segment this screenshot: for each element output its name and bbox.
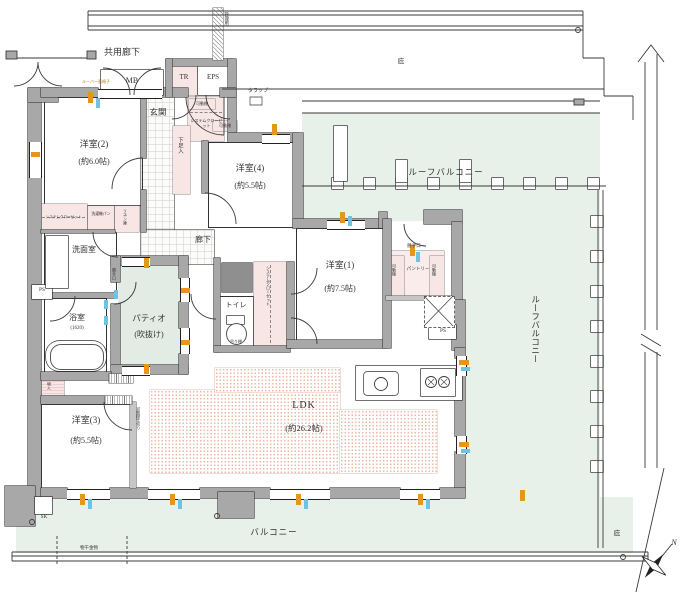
service-door-label: 勝手口: [400, 243, 428, 249]
wall-segment: [220, 88, 236, 97]
movable-shelf-label: 可動棚: [215, 123, 235, 128]
railing-post: [591, 251, 603, 262]
shutter-mark: [418, 494, 423, 505]
western4-size: (約5.5帖): [212, 181, 288, 191]
ldk-floor-pattern: [215, 368, 340, 392]
bathtub-inner: [50, 344, 104, 370]
patio-note: (吹抜け): [123, 330, 175, 340]
western3-name: 洋室(3): [50, 415, 122, 426]
hanging-shelf-label: 吊り棚: [226, 339, 246, 344]
wall-segment: [455, 452, 465, 490]
window: [456, 356, 467, 376]
wall-segment: [179, 256, 188, 278]
shoe-closet-label: 下足入: [176, 137, 183, 154]
shutter-mark: [181, 340, 190, 345]
shutter-mark: [31, 152, 40, 157]
wall-segment: [41, 396, 107, 404]
balcony-corner-block: [5, 486, 35, 526]
wall-segment: [141, 96, 146, 158]
wall-segment: [287, 262, 294, 348]
wall-segment: [330, 488, 400, 498]
window: [262, 134, 290, 144]
mb-label: MB: [118, 76, 146, 86]
wall-segment: [179, 302, 188, 328]
wall-segment: [110, 488, 148, 498]
wall-segment: [293, 133, 303, 228]
screen-mark: [104, 316, 108, 325]
shutter-mark: [88, 92, 93, 103]
screen-mark: [461, 367, 470, 371]
wall-segment: [179, 354, 188, 374]
ps-label: PS: [34, 287, 50, 294]
floor-plan: 共用廊下 庇 管理用 タラップ ルーバー面格子 MB TR EPS 玄関 下足入…: [0, 0, 680, 599]
bathroom-size: (1620): [62, 326, 92, 332]
sk-sink: [35, 497, 52, 514]
linen-closet-label: リネン庫: [123, 209, 128, 225]
movable-shelf-label: 可動棚: [432, 264, 437, 276]
kitchen-stove: [421, 369, 455, 396]
shutter-mark: [144, 364, 149, 374]
compass-icon: [642, 544, 672, 578]
balcony-pillar: [218, 492, 254, 518]
wall-segment: [166, 59, 232, 66]
screen-mark: [96, 98, 100, 108]
shutter-mark: [296, 494, 301, 505]
screen-mark: [426, 499, 430, 509]
laundry-pan-box: [88, 206, 114, 233]
pantry-shelf-left: [391, 256, 404, 300]
railing-post: [364, 178, 375, 189]
patio-name: パティオ: [125, 313, 173, 324]
vanity-counter: [46, 236, 68, 288]
entrance-label: 玄関: [142, 107, 174, 118]
kitchen-sink: [364, 372, 398, 395]
shutter-mark: [80, 494, 85, 505]
screen-mark: [88, 499, 92, 509]
wall-segment: [41, 372, 111, 380]
eaves-label-top: 庇: [394, 58, 408, 66]
ldk-name: LDK: [282, 400, 326, 413]
louver-grille-label: ルーバー面格子: [82, 79, 110, 84]
wall-segment: [141, 190, 146, 232]
closet-shelf-line: [190, 112, 222, 113]
window: [98, 89, 162, 99]
roof-pillar: [334, 126, 347, 181]
ps-duct: [222, 263, 252, 292]
railing-post: [591, 216, 603, 227]
ldk-floor-pattern: [340, 410, 437, 473]
shutter-mark: [144, 258, 149, 268]
service-door-label: 勝手口: [112, 268, 117, 280]
ladder-label: タラップ: [248, 89, 268, 95]
screen-mark: [416, 252, 420, 262]
western2-size: (約6.0帖): [54, 157, 134, 167]
eaves-label-bottom: 庇: [611, 530, 623, 538]
railing-post: [588, 178, 599, 189]
window: [327, 220, 365, 230]
shutter-mark: [459, 360, 469, 365]
corridor-label: 廊下: [188, 235, 218, 245]
movable-shelf-label: 可動棚: [191, 101, 213, 106]
eps-label: EPS: [199, 73, 227, 82]
system-closet-label: システムクローゼット: [266, 266, 271, 306]
railing-post: [556, 178, 567, 189]
toilet-label: トイレ: [221, 301, 251, 310]
wall-segment: [214, 346, 290, 352]
partition-track: [105, 396, 132, 404]
balcony-label: バルコニー: [244, 527, 304, 538]
tr-label: TR: [172, 73, 196, 82]
western1-name: 洋室(1): [304, 260, 376, 271]
pantry-shelf-right: [430, 256, 444, 300]
shutter-mark: [272, 124, 277, 135]
wall-segment: [41, 230, 115, 233]
railing-post: [492, 178, 503, 189]
shutter-mark: [459, 442, 469, 447]
wall-segment: [214, 258, 220, 352]
railing-post: [591, 461, 603, 472]
railing-post: [524, 178, 535, 189]
compass-north-label: N: [668, 538, 680, 548]
roof-balcony-label-right: ルーフバルコニー: [530, 295, 541, 363]
wall-segment: [452, 222, 462, 304]
western3-size: (約5.5帖): [48, 436, 124, 446]
window: [29, 142, 42, 178]
screen-mark: [114, 290, 118, 299]
duct-box: [424, 296, 455, 328]
shutter-mark: [340, 212, 345, 223]
shutter-mark: [181, 288, 190, 293]
shutter-mark: [170, 494, 175, 505]
bathroom-label: 浴室: [60, 313, 94, 323]
wall-segment: [41, 293, 115, 298]
ldk-size: (約26.2帖): [272, 423, 336, 434]
wall-segment: [440, 488, 465, 498]
western2-name: 洋室(2): [56, 139, 132, 150]
maintenance-strip: [213, 8, 223, 60]
laundry-pan-label: 洗濯機パン: [89, 212, 113, 217]
railing-post: [591, 426, 603, 437]
screen-mark: [104, 300, 108, 309]
railing-post: [591, 356, 603, 367]
screen-mark: [461, 449, 470, 453]
wall-segment: [383, 219, 391, 348]
sk-label: SK: [37, 515, 51, 521]
western1-size: (約7.5帖): [302, 284, 378, 294]
room-western2: [44, 97, 143, 206]
railing-post: [591, 321, 603, 332]
movable-partition-label: 可動間仕切り: [136, 407, 141, 430]
laundry-fixture-label: 物干金物: [70, 545, 108, 551]
screen-mark: [304, 499, 308, 509]
railing-post: [591, 391, 603, 402]
railing-post: [428, 178, 439, 189]
system-closet-label: システムクローゼット: [41, 215, 86, 219]
screen-mark: [348, 216, 352, 226]
movable-shelf-label: 可動棚: [392, 264, 397, 276]
wall-segment: [202, 141, 208, 193]
maintenance-label: 管理用: [224, 12, 230, 26]
roof-balcony-label-top: ルーフバルコニー: [398, 167, 494, 178]
common-corridor-label: 共用廊下: [82, 47, 162, 58]
ps-label: PS: [434, 328, 452, 335]
balcony-area: [16, 497, 633, 553]
railing-post: [591, 286, 603, 297]
storage-label: 物入: [47, 382, 52, 390]
screen-mark: [178, 499, 182, 509]
wall-segment: [287, 340, 387, 348]
western4-name: 洋室(4): [214, 163, 286, 174]
wall-segment: [111, 304, 120, 365]
shutter-mark: [520, 490, 525, 501]
washroom-label: 洗面室: [60, 245, 108, 255]
